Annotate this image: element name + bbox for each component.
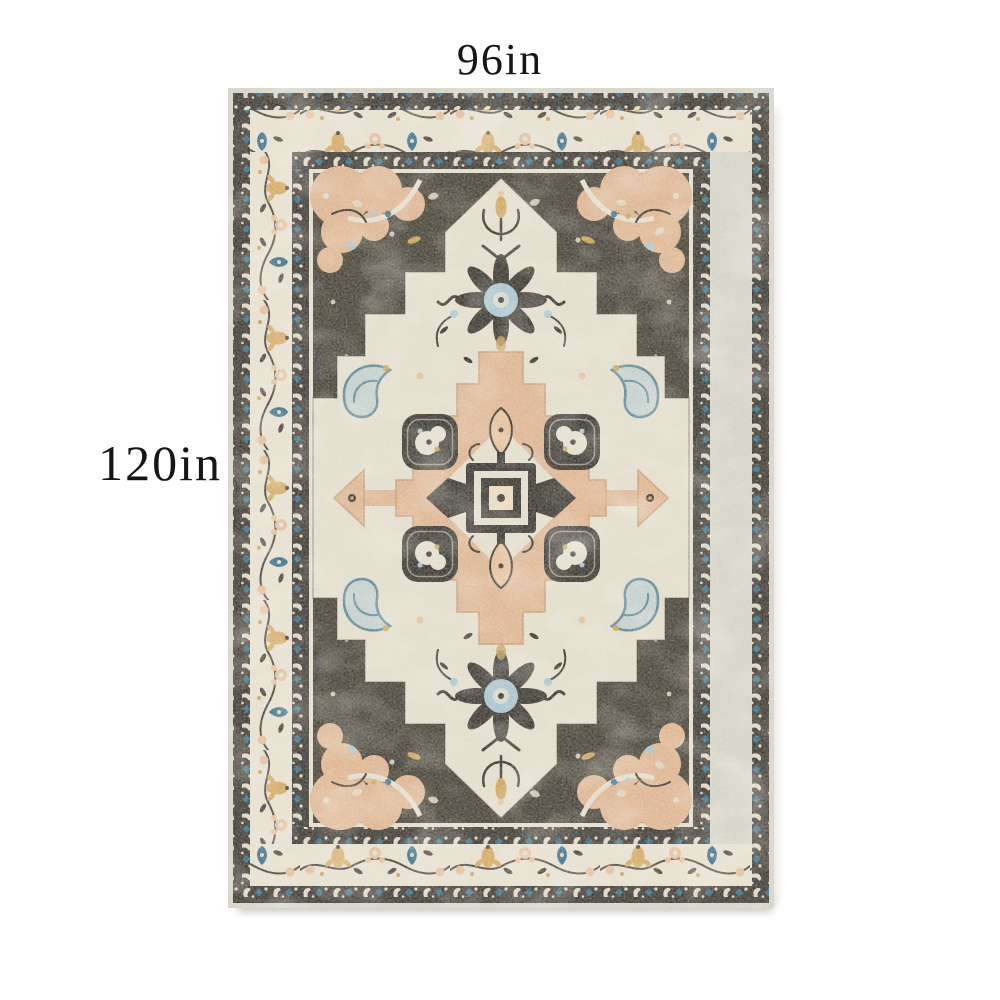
product-image-canvas: 96in 120in	[0, 0, 1000, 1000]
rug-photo	[0, 0, 1000, 1000]
rug	[228, 88, 774, 908]
worn-texture-overlay	[228, 88, 774, 908]
